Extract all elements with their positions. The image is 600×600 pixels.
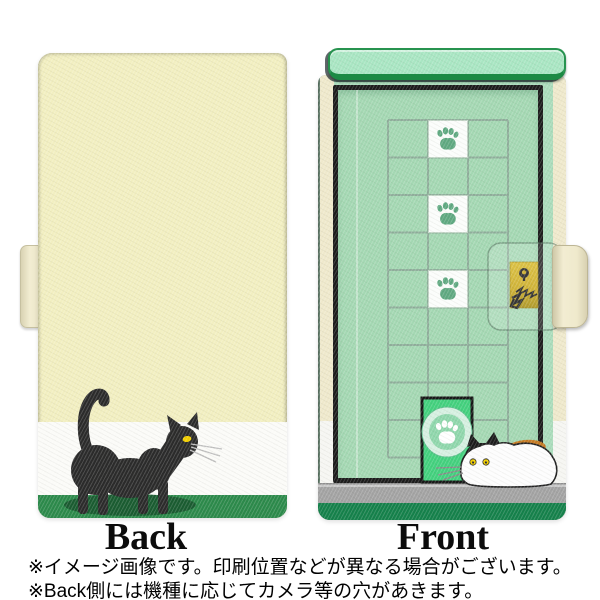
disclaimer-text: ※イメージ画像です。印刷位置などが異なる場合がございます。 ※Back側には機種… xyxy=(28,556,572,600)
cat-ear xyxy=(187,412,199,430)
disclaimer-line-2: ※Back側には機種に応じてカメラ等の穴があきます。 xyxy=(28,580,572,600)
back-cover-panel xyxy=(38,53,287,518)
door-lintel-bar xyxy=(328,48,566,80)
disclaimer-line-1: ※イメージ画像です。印刷位置などが異なる場合がございます。 xyxy=(28,556,572,580)
black-cat-illustration xyxy=(38,53,287,518)
product-image: Back Front ※イメージ画像です。印刷位置などが異なる場合がございます。… xyxy=(0,0,600,600)
front-label: Front xyxy=(397,517,489,557)
front-clasp-strap xyxy=(552,245,588,328)
front-cover-panel xyxy=(318,75,566,520)
paw-tiles xyxy=(429,121,468,308)
back-label: Back xyxy=(105,517,187,557)
front-door-art xyxy=(318,75,566,520)
calico-ear xyxy=(486,432,500,444)
fabric-texture xyxy=(330,50,564,74)
clasp-flap-overlay xyxy=(488,243,562,330)
